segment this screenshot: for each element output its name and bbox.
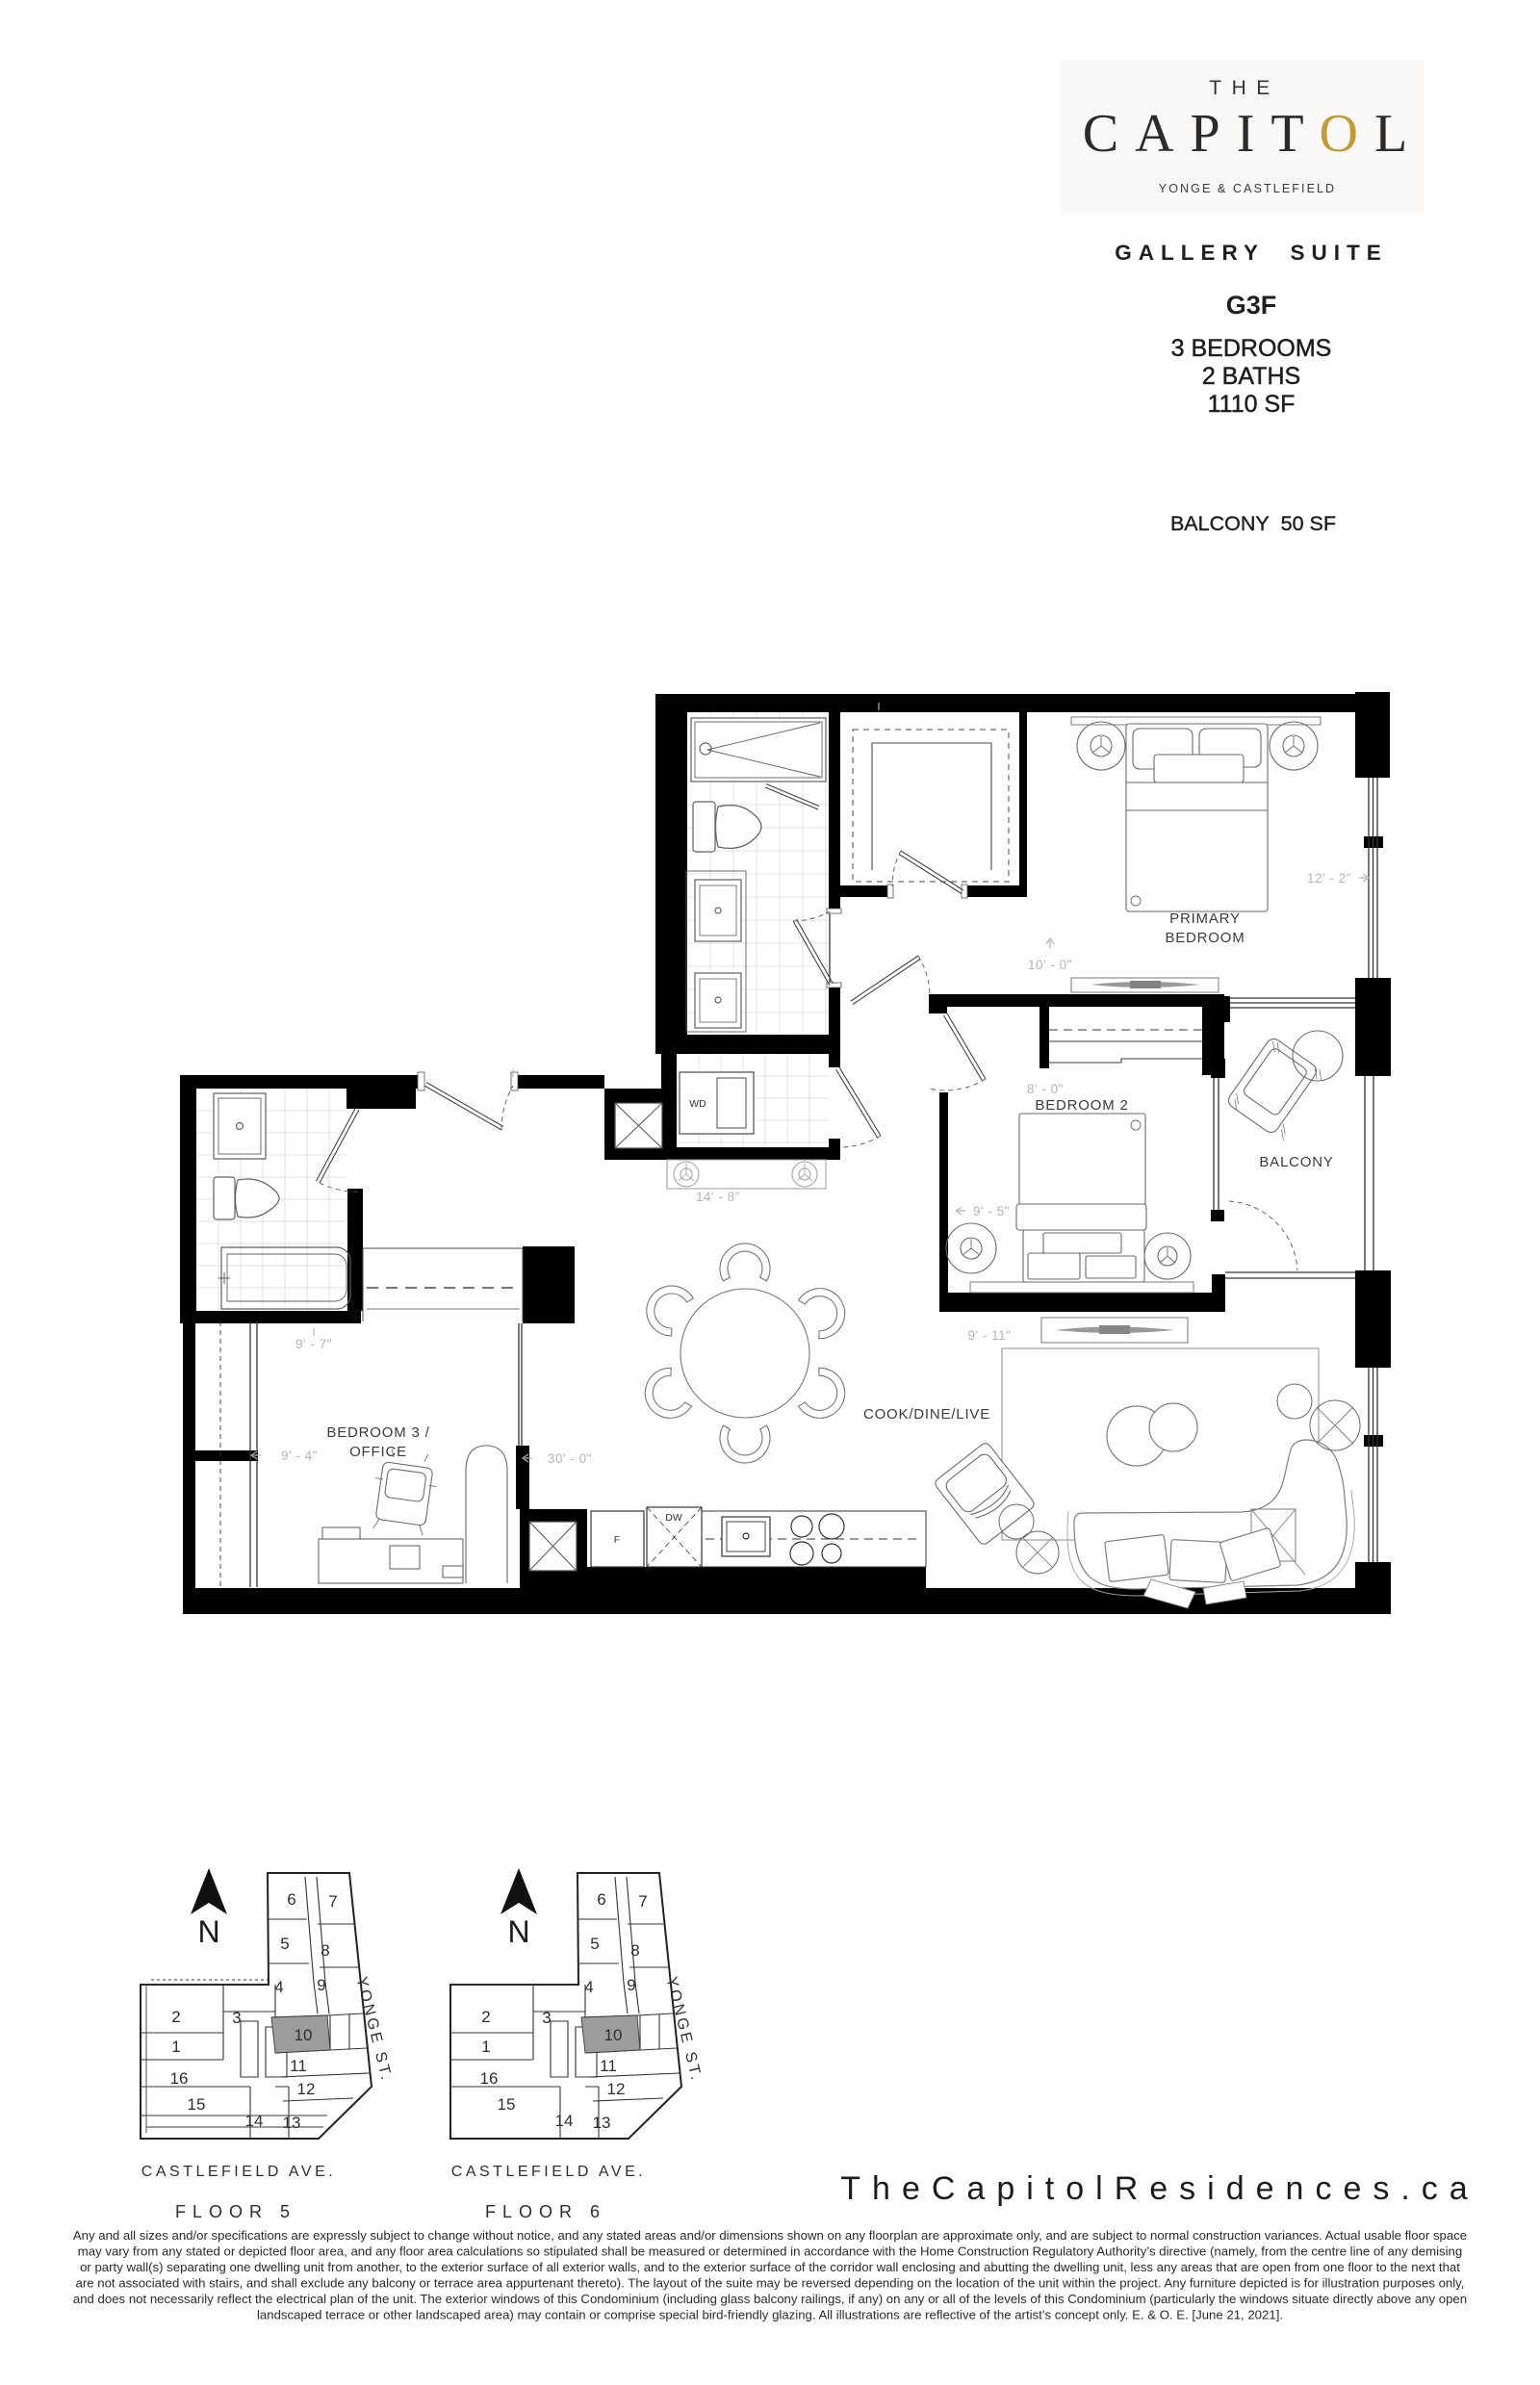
svg-text:BALCONY 50 SF: BALCONY 50 SF bbox=[1170, 512, 1336, 535]
svg-text:GALLERY SUITE: GALLERY SUITE bbox=[1115, 241, 1387, 265]
svg-text:9' - 11": 9' - 11" bbox=[968, 1328, 1012, 1343]
svg-text:9' - 5": 9' - 5" bbox=[973, 1204, 1010, 1218]
svg-text:9' - 7": 9' - 7" bbox=[295, 1337, 332, 1351]
svg-text:landscaped terrace or other la: landscaped terrace or other landscaped a… bbox=[257, 2308, 1283, 2322]
svg-text:12' - 2": 12' - 2" bbox=[1307, 871, 1351, 885]
svg-text:COOK/DINE/LIVE: COOK/DINE/LIVE bbox=[863, 1406, 990, 1423]
svg-text:PRIMARY: PRIMARY bbox=[1169, 910, 1241, 927]
svg-text:WD: WD bbox=[689, 1098, 706, 1110]
svg-text:1110 SF: 1110 SF bbox=[1208, 391, 1296, 418]
svg-text:10' - 0": 10' - 0" bbox=[1028, 958, 1072, 972]
svg-text:Any and all sizes and/or speci: Any and all sizes and/or specifications … bbox=[73, 2228, 1467, 2243]
svg-text:and does not necessarily refle: and does not necessarily reflect the ele… bbox=[73, 2292, 1467, 2306]
svg-text:3 BEDROOMS: 3 BEDROOMS bbox=[1171, 335, 1332, 362]
svg-text:2 BATHS: 2 BATHS bbox=[1202, 363, 1300, 390]
svg-text:BEDROOM: BEDROOM bbox=[1165, 930, 1245, 946]
svg-text:14' - 8": 14' - 8" bbox=[696, 1190, 740, 1204]
svg-text:DW: DW bbox=[665, 1512, 682, 1524]
svg-text:BEDROOM 2: BEDROOM 2 bbox=[1035, 1097, 1128, 1114]
svg-text:F: F bbox=[614, 1534, 620, 1546]
svg-text:or party wall(s) separating on: or party wall(s) separating one dwelling… bbox=[80, 2260, 1460, 2274]
svg-text:may vary from any stated or de: may vary from any stated or depicted flo… bbox=[78, 2244, 1462, 2259]
svg-text:BALCONY: BALCONY bbox=[1259, 1154, 1333, 1170]
svg-text:are not associated with stairs: are not associated with stairs, and shal… bbox=[76, 2276, 1465, 2291]
svg-text:OFFICE: OFFICE bbox=[349, 1444, 407, 1460]
svg-text:9' - 4": 9' - 4" bbox=[281, 1449, 318, 1463]
svg-text:FLOOR 6: FLOOR 6 bbox=[485, 2202, 606, 2221]
svg-text:G3F: G3F bbox=[1226, 291, 1277, 320]
svg-text:30' - 0": 30' - 0" bbox=[548, 1451, 592, 1466]
svg-text:CAPITOL: CAPITOL bbox=[1083, 104, 1424, 164]
svg-text:8' - 0": 8' - 0" bbox=[1027, 1082, 1064, 1096]
svg-text:YONGE & CASTLEFIELD: YONGE & CASTLEFIELD bbox=[1159, 182, 1336, 195]
svg-text:THE: THE bbox=[1209, 77, 1280, 99]
svg-text:TheCapitolResidences.ca: TheCapitolResidences.ca bbox=[840, 2170, 1478, 2207]
svg-text:FLOOR 5: FLOOR 5 bbox=[175, 2202, 296, 2221]
svg-text:BEDROOM 3 /: BEDROOM 3 / bbox=[326, 1424, 429, 1441]
